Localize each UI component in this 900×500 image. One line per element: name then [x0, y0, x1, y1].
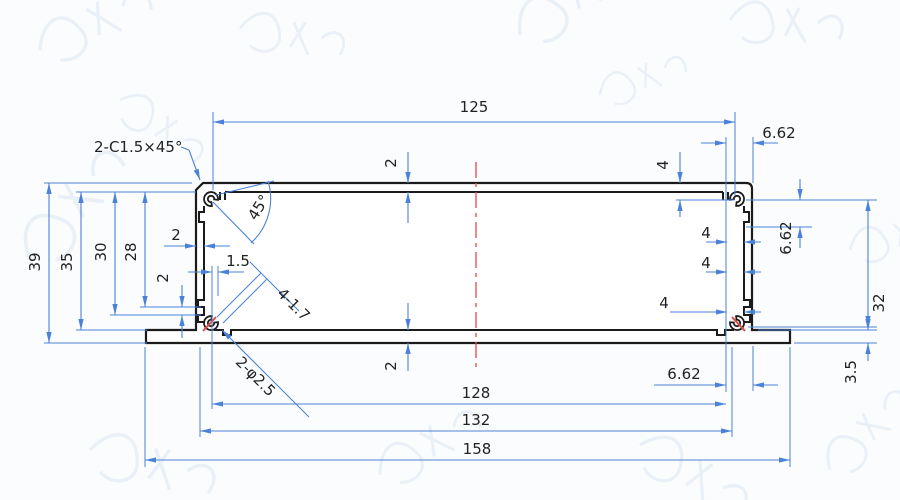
dim-overall-height: 39 [26, 252, 44, 271]
dim-inner-width: 128 [462, 384, 491, 402]
dim-overall-width: 158 [463, 440, 492, 458]
dim-groove-gap: 2 [154, 273, 172, 283]
dim-bottom-wall: 2 [382, 361, 400, 371]
dim-top-width: 125 [460, 98, 489, 116]
dim-groove-upper: 28 [122, 242, 140, 261]
dim-boss-wall-lower: 4 [701, 254, 711, 272]
dim-boss-span: 32 [870, 293, 888, 312]
dim-boss-wall-bottom: 4 [659, 294, 669, 312]
dim-outer-width: 132 [462, 411, 491, 429]
dim-chamfer-note: 2-C1.5×45° [94, 138, 182, 156]
dim-boss-drop: 6.62 [777, 221, 795, 254]
technical-drawing: 2-C1.5×45° 125 2 4 6.62 45° 2 1.5 2 39 3… [0, 0, 900, 500]
dim-flange-thickness: 3.5 [842, 360, 860, 384]
dim-top-wall: 2 [382, 158, 400, 168]
drawing-canvas: 2-C1.5×45° 125 2 4 6.62 45° 2 1.5 2 39 3… [0, 0, 900, 500]
dim-bottom-boss-offset: 6.62 [667, 365, 700, 383]
dim-groove-width: 1.5 [226, 252, 250, 270]
dim-boss-wall-upper: 4 [701, 224, 711, 242]
dim-inner-height: 35 [58, 252, 76, 271]
dim-corner-offset: 6.62 [762, 124, 795, 142]
dim-groove-lower: 30 [92, 242, 110, 261]
dim-hole-note: 2-φ2.5 [232, 353, 279, 400]
dim-top-boss-offset: 4 [654, 160, 672, 170]
dim-left-wall: 2 [171, 226, 181, 244]
